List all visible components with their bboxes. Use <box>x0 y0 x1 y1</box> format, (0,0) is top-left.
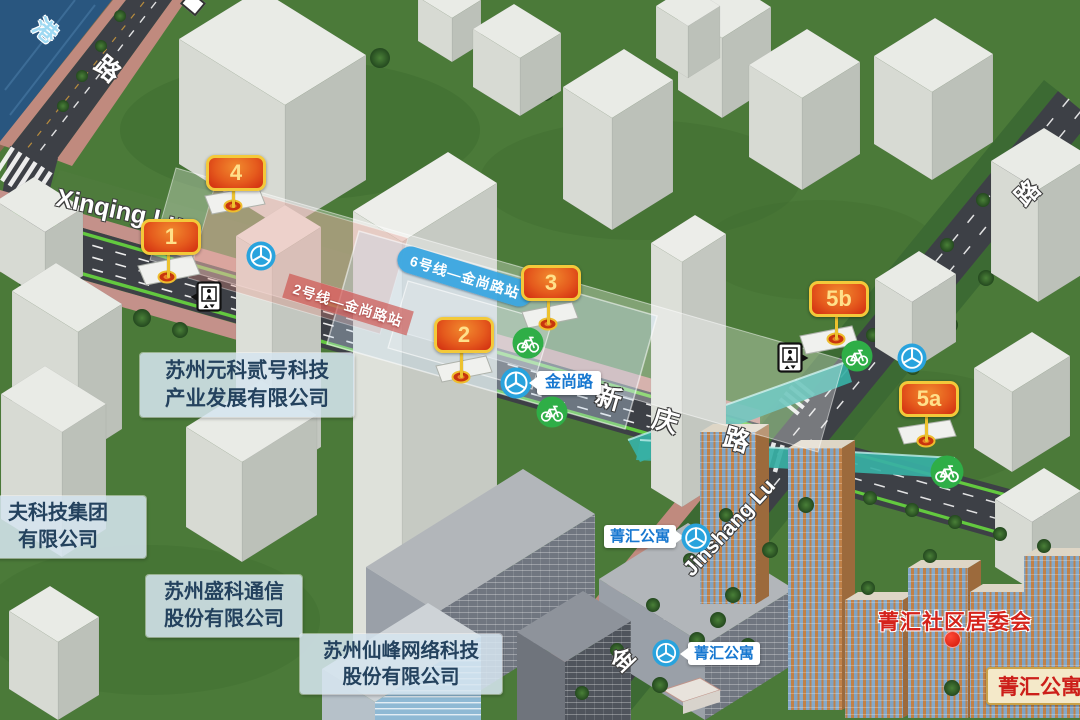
metro-icon-jinghui-1[interactable] <box>681 523 711 553</box>
bike-icon-1[interactable] <box>512 327 544 359</box>
station-name-label[interactable]: 金尚路 <box>537 371 601 395</box>
poi-label-jinghui-apartment-1[interactable]: 菁汇公寓 <box>604 525 676 548</box>
exit-badge-5a[interactable]: 5a <box>899 381 959 417</box>
exit-badge-3[interactable]: 3 <box>521 265 581 301</box>
metro-station-icon[interactable] <box>500 367 532 399</box>
exit-badge-5b[interactable]: 5b <box>809 281 869 317</box>
elevator-icon-exit1[interactable] <box>189 281 227 313</box>
exit-badge-4[interactable]: 4 <box>206 155 266 191</box>
poi-label-yuanke[interactable]: 苏州元科贰号科技 产业发展有限公司 <box>140 353 354 417</box>
label-pointer <box>680 648 688 660</box>
committee-location-dot <box>944 631 961 648</box>
poi-label-fu-group[interactable]: 夫科技集团 有限公司 <box>0 496 146 558</box>
metro-icon-jinghui-2[interactable] <box>652 639 680 667</box>
poi-label-xianfeng[interactable]: 苏州仙峰网络科技 股份有限公司 <box>300 634 502 694</box>
bike-icon-2[interactable] <box>536 396 568 428</box>
label-pointer <box>529 377 537 389</box>
bike-icon-5b[interactable] <box>841 340 873 372</box>
exit-badge-1[interactable]: 1 <box>141 219 201 255</box>
metro-icon-5b[interactable] <box>897 343 927 373</box>
exit-badge-2[interactable]: 2 <box>434 317 494 353</box>
elevator-icon-5b[interactable] <box>777 342 815 374</box>
poi-label-shengke[interactable]: 苏州盛科通信 股份有限公司 <box>146 575 302 637</box>
poi-badge-jinghui-apartment[interactable]: 菁汇公寓 <box>986 667 1080 705</box>
bike-icon-5a[interactable] <box>930 455 964 489</box>
metro-exit-3d-map[interactable]: Xinqing Lu 港 路 路 新 庆 路 Jinshang Lu 金 2号线… <box>0 0 1080 720</box>
metro-icon-exit1[interactable] <box>246 241 276 271</box>
poi-label-jinghui-apartment-2[interactable]: 菁汇公寓 <box>688 642 760 665</box>
